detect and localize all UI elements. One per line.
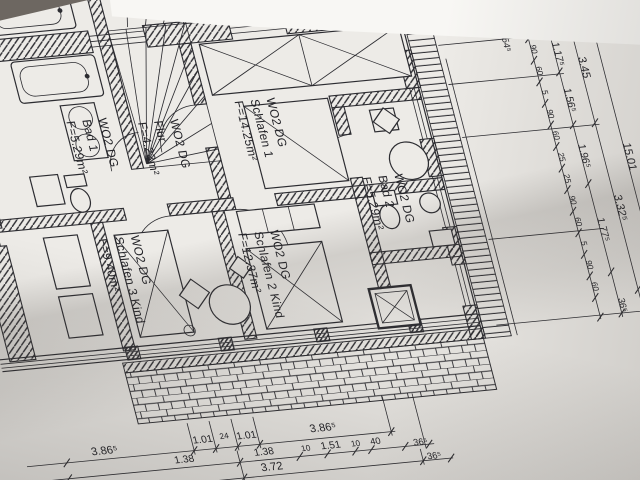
dim-label: 24 xyxy=(218,431,230,441)
bathtub xyxy=(10,54,104,103)
dim-label: 1.38 xyxy=(173,454,196,467)
toilet xyxy=(68,188,93,213)
dim-label: 90 xyxy=(567,195,578,205)
floor-plan-perspective-wrapper: WO2 DG Bad 1 F=5.29m² WO2 DG Flur F=4.23… xyxy=(0,0,640,480)
dim-label: 3.45 xyxy=(575,56,592,79)
wardrobe xyxy=(43,235,90,289)
dim-label: 40 xyxy=(369,436,382,447)
wall-bad2-bottom xyxy=(370,244,463,264)
dim-label: 1.56⁵ xyxy=(561,88,578,113)
dim-label: 1.01 xyxy=(235,430,258,443)
dim-label: 60 xyxy=(573,217,584,227)
dim-label: 3.86⁵ xyxy=(308,421,337,435)
dim-label: 60 xyxy=(589,282,600,292)
dim-label: 90 xyxy=(545,109,556,119)
corridor-wall xyxy=(0,208,126,234)
dim-label: 36⁵ xyxy=(616,297,630,312)
dim-label: 5 xyxy=(579,241,589,247)
room-label-flur: WO2 DG xyxy=(167,118,194,169)
terrace-post xyxy=(125,346,141,360)
dim-label: 90 xyxy=(584,260,595,270)
dim-label: 25 xyxy=(556,152,567,162)
chimney xyxy=(369,285,421,328)
washbasin xyxy=(418,192,443,214)
dim-label-total: 15.01 xyxy=(620,142,639,171)
dim-label: 10 xyxy=(300,444,312,454)
dim-label: 60 xyxy=(550,131,561,141)
photo-of-floor-plan: WO2 DG Bad 1 F=5.29m² WO2 DG Flur F=4.23… xyxy=(0,0,640,480)
dim-label: 1.17⁵ xyxy=(549,42,566,67)
dim-label: 1.51 xyxy=(319,440,342,453)
floor-plan-drawing: WO2 DG Bad 1 F=5.29m² WO2 DG Flur F=4.23… xyxy=(0,0,640,480)
dim-label: 3.86⁵ xyxy=(90,444,119,458)
dim-label: 1.77⁵ xyxy=(594,217,611,242)
dim-label: 1.01 xyxy=(191,434,214,447)
dim-label: 3.72 xyxy=(260,460,285,474)
washing-machine xyxy=(30,174,65,206)
dim-label: 5 xyxy=(540,90,550,96)
dim-label: 1.38 xyxy=(253,446,276,459)
dim-label: 60 xyxy=(534,66,545,76)
dim-label: 25 xyxy=(562,174,573,184)
dim-label: 36⁵ xyxy=(412,436,429,447)
dim-label: 36⁵ xyxy=(426,450,443,461)
cabinet xyxy=(429,229,455,247)
toilet-cistern xyxy=(64,174,87,188)
wall-bad2-top xyxy=(329,87,422,107)
dim-label: 90 xyxy=(528,44,539,54)
dim-label: 10 xyxy=(350,439,362,449)
dim-label: 3.32⁵ xyxy=(611,194,630,221)
dresser xyxy=(59,294,103,338)
dim-label: 1.96⁵ xyxy=(575,144,592,169)
